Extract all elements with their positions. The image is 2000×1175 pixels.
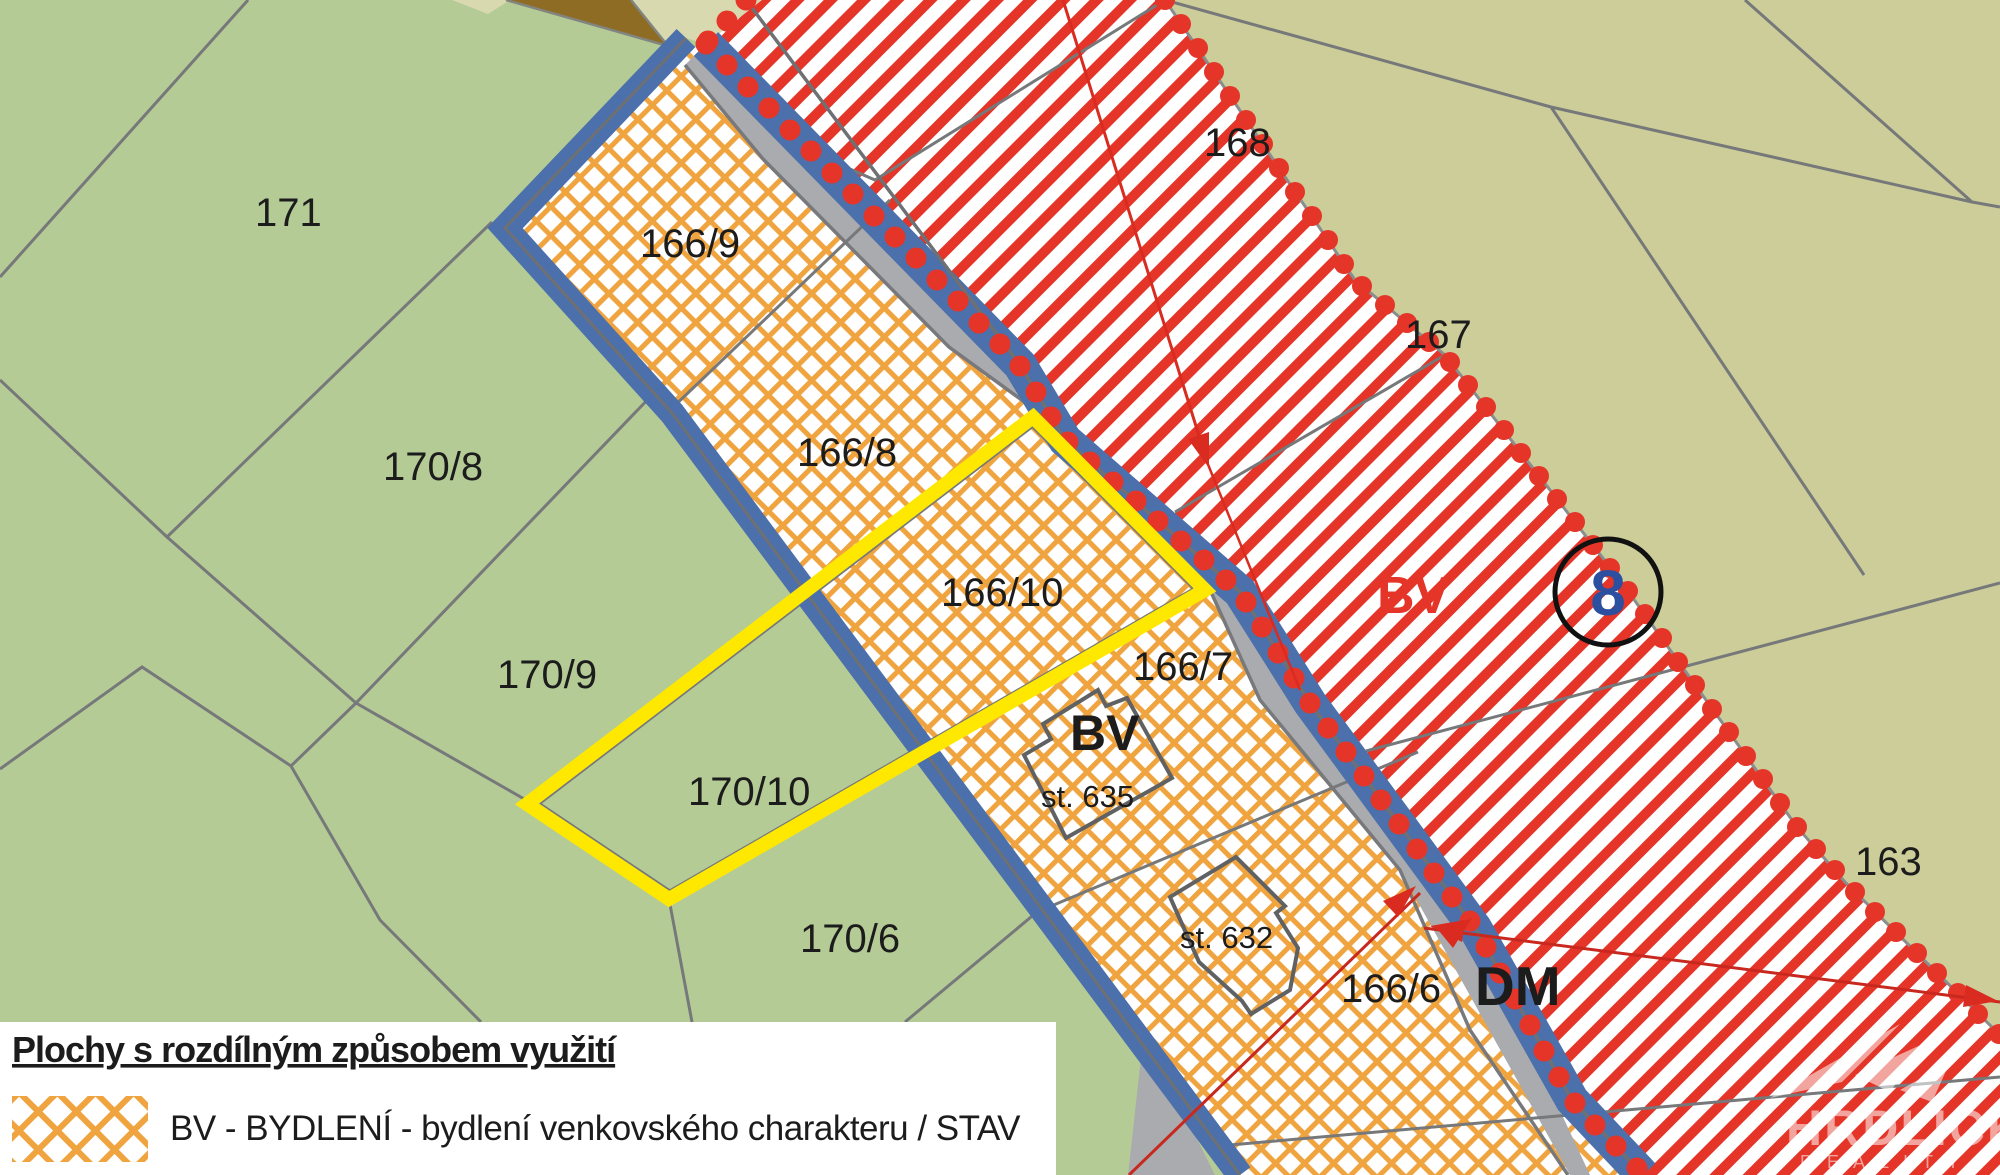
svg-text:BV: BV — [1377, 567, 1450, 625]
svg-text:st. 635: st. 635 — [1041, 779, 1134, 814]
svg-text:166/9: 166/9 — [640, 222, 740, 266]
svg-text:BV: BV — [1070, 705, 1140, 761]
svg-text:166/10: 166/10 — [941, 571, 1063, 615]
svg-text:st. 632: st. 632 — [1180, 920, 1273, 955]
svg-text:166/7: 166/7 — [1133, 645, 1233, 689]
svg-text:168: 168 — [1204, 121, 1271, 165]
svg-text:BV - BYDLENÍ - bydlení venkovs: BV - BYDLENÍ - bydlení venkovského chara… — [170, 1109, 1021, 1148]
svg-text:166/6: 166/6 — [1341, 967, 1441, 1011]
svg-text:8: 8 — [1590, 557, 1626, 629]
svg-text:DM: DM — [1475, 955, 1561, 1017]
svg-text:170/10: 170/10 — [688, 770, 810, 814]
svg-text:170/9: 170/9 — [497, 653, 597, 697]
svg-text:167: 167 — [1405, 313, 1472, 357]
svg-text:HRDLICKA: HRDLICKA — [1786, 1100, 2000, 1156]
svg-text:REALITY: REALITY — [1800, 1152, 1973, 1172]
svg-text:163: 163 — [1855, 840, 1922, 884]
svg-text:171: 171 — [255, 191, 322, 235]
svg-text:170/8: 170/8 — [383, 445, 483, 489]
svg-text:166/8: 166/8 — [797, 431, 897, 475]
svg-text:Plochy s rozdílným způsobem vy: Plochy s rozdílným způsobem využití — [12, 1029, 617, 1070]
svg-text:170/6: 170/6 — [800, 917, 900, 961]
